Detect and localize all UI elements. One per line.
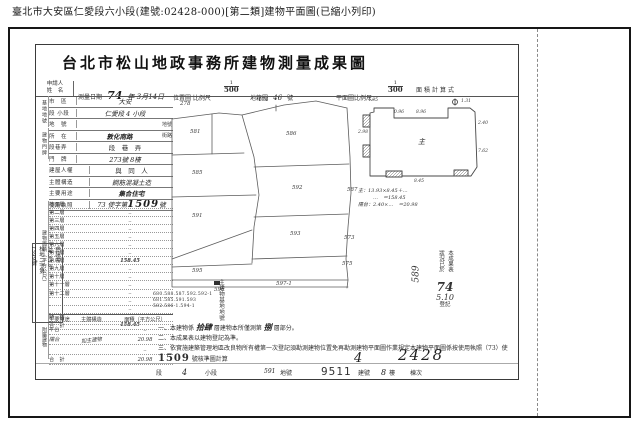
bottom-floor-label: 樓: [389, 368, 395, 377]
receipt-stamp-number: 1599號: [29, 246, 37, 320]
floor-row: 第五層‥: [49, 233, 173, 241]
plan-scale-value: 1 300: [388, 81, 403, 92]
fold-line: [537, 29, 538, 416]
plan-dimension: 8.45: [414, 179, 424, 184]
receipt-stamp-date: 74.3.13: [45, 246, 53, 320]
note-2: 二、本成果表以建物登記為準。: [158, 334, 520, 344]
applicant-name-cell: 申請人 姓 名: [37, 81, 74, 96]
map-lot-label: 581: [190, 129, 201, 135]
handwritten-number-2: 2428: [398, 346, 444, 364]
area-calculation-text: 主：13.93×8.45＋… … ＝158.45 陽台：2.40×… ＝20.9…: [358, 188, 516, 209]
receipt-stamp-line3: 松地二字第: [37, 246, 45, 320]
applicant-label-line2: 姓 名: [37, 88, 73, 95]
plan-dimension: 1.31: [461, 99, 471, 104]
row-section: 段 小段 仁愛段 4 小段: [49, 108, 173, 120]
applicant-label-line1: 申請人: [37, 81, 73, 88]
row-street: 所 在 敦化南路 街路: [49, 131, 173, 143]
map-drawing: [164, 97, 362, 295]
row-district: 市 區 大安: [49, 96, 173, 108]
bottom-building-number-value: 9511: [321, 365, 352, 378]
floor-row: 第二層‥: [49, 209, 173, 217]
map-lot-label: 585: [192, 170, 203, 176]
map-lot-label: 587: [347, 187, 358, 193]
registration-stamp-col1: 本成果表: [445, 241, 454, 281]
map-lot-label: 592: [292, 185, 303, 191]
floor-row: 第九層‥: [49, 265, 173, 273]
map-lot-label: 591: [192, 213, 203, 219]
floor-row: 第七層‥: [49, 249, 173, 257]
bottom-section-label: 段: [156, 368, 162, 377]
row-lot-number: 地 號 地號: [49, 119, 173, 131]
plan-dimension: 8.96: [416, 110, 426, 115]
bottom-section-value: 4: [182, 368, 187, 377]
base-lot-numbers-stamp: 680.588.587.592.592-1 681.585.591.593 58…: [153, 292, 213, 310]
annex-row: 平台 ‥: [49, 325, 173, 335]
plan-dimension: 4.05: [368, 98, 378, 103]
bottom-lot-value: 591: [264, 368, 275, 375]
row-owner: 建屋人權 與 同 人: [49, 165, 173, 177]
annex-row-balcony: 陽台 如主建物 20.98: [49, 335, 173, 345]
registration-stamp-col2: 狀況已於: [436, 241, 445, 281]
map-lot-label: 595: [192, 268, 203, 274]
note-1-measured-floor-handwritten: 捌: [264, 322, 272, 332]
floor-row: 第三層‥: [49, 217, 173, 225]
plan-dimension: 2.98: [358, 130, 368, 135]
outer-frame: 台北市松山地政事務所建物測量成果圖 申請人 姓 名 測量日期 74 年 3月14…: [8, 27, 631, 418]
floor-row: 第六層‥: [49, 241, 173, 249]
rotated-lot-number: 589: [412, 265, 422, 282]
annex-table: 主要用途 主體構造 面積（平方公尺） 平台 ‥ 陽台 如主建物 20.98 ‥ …: [49, 314, 173, 365]
plan-main-mark: 主: [418, 137, 425, 147]
location-map-sketch: 278 174 581 586 585 592 587 591 593 595 …: [164, 97, 362, 295]
floor-area-table: 地面層‥ 第二層‥ 第三層‥ 第四層‥ 第五層‥ 第六層‥ 第七層‥ 第八層15…: [49, 201, 173, 330]
row-main-use: 主要用途 集合住宅: [49, 188, 173, 200]
floor-row: 第十一層‥: [49, 281, 173, 289]
receipt-stamp-line1: 申請書: [53, 246, 61, 320]
group-label-base-lot: 基地地號: [37, 96, 49, 127]
registration-month-day: 5.10: [424, 293, 466, 302]
floor-row: 第四層‥: [49, 225, 173, 233]
plan-dimension: 7.62: [478, 149, 488, 154]
form-rows: 市 區 大安 段 小段 仁愛段 4 小段 地 號 地號 所 在 敦化南路 街路 …: [49, 96, 173, 211]
floor-row-eighth: 第八層158.45: [49, 257, 173, 265]
row-lane: 段巷弄 段 巷 弄: [49, 142, 173, 154]
annex-header-row: 主要用途 主體構造 面積（平方公尺）: [49, 315, 173, 325]
annex-row: ‥: [49, 345, 173, 355]
registration-suffix: 登記: [424, 302, 466, 309]
notes-block: 一、本建物係 拾肆 層建物本所僅測第 捌 層部分。 二、本成果表以建物登記為準。…: [158, 322, 520, 365]
map-lot-label: 174: [258, 97, 269, 103]
bottom-unit-label: 棟次: [410, 368, 422, 377]
map-lot-label: 586: [286, 131, 297, 137]
registration-year: 74: [424, 281, 466, 293]
map-lot-label: 573: [344, 235, 355, 241]
group-label-address: 建物門牌: [37, 128, 49, 159]
note-1: 一、本建物係 拾肆 層建物本所僅測第 捌 層部分。: [158, 322, 520, 334]
bottom-subsection-label: 小段: [205, 368, 217, 377]
document-heading: 台北市松山地政事務所建物測量成果圖: [62, 52, 368, 73]
note-1-floors-handwritten: 拾肆: [196, 322, 212, 332]
application-receipt-stamp: 申請書 74.3.13 松地二字第 1599號: [32, 243, 63, 323]
map-lot-label: 278: [180, 101, 191, 107]
print-header-title: 臺北市大安區仁愛段六小段(建號:02428-000)[第二類]建物平面圖(已縮小…: [12, 3, 376, 18]
floor-row: 地面層‥: [49, 201, 173, 209]
plan-dimension: 0.96: [394, 110, 404, 115]
registration-stamp: 本成果表 狀況已於 74 5.10 登記: [424, 241, 466, 309]
area-calc-label: 面積計算式: [416, 85, 456, 94]
map-lot-label: 597-1: [276, 281, 292, 287]
bottom-lot-label: 地號: [280, 368, 292, 377]
location-scale-value: 1 500: [224, 81, 239, 92]
row-door-plate: 門 牌 273號 8樓: [49, 154, 173, 166]
bottom-identification-row: 段 4 小段 591 地號 9511 建號 8 樓 棟次: [36, 363, 518, 380]
map-lot-label: 593: [290, 231, 301, 237]
plan-dimension: 2.40: [478, 121, 488, 126]
map-lot-label: 575: [342, 261, 353, 267]
screenshot-root: { "page_title": "臺北市大安區仁愛段六小段(建號:02428-0…: [0, 0, 640, 424]
row-structure: 主體構造 鋼筋混凝土造: [49, 177, 173, 189]
bottom-building-number-label: 建號: [358, 368, 370, 377]
floor-plan-sketch: 4.05 0.96 8.96 1.31 2.40 7.62 2.98 8.45 …: [358, 97, 490, 189]
survey-form-page: 台北市松山地政事務所建物測量成果圖 申請人 姓 名 測量日期 74 年 3月14…: [35, 44, 519, 380]
floor-row: 第十層‥: [49, 273, 173, 281]
note-3: 三、依實施建築管理地區改良物所有權第一次登記須勘測建物位置免再勘測建物平面圖作業…: [158, 344, 520, 365]
bottom-floor-value: 8: [381, 368, 386, 377]
